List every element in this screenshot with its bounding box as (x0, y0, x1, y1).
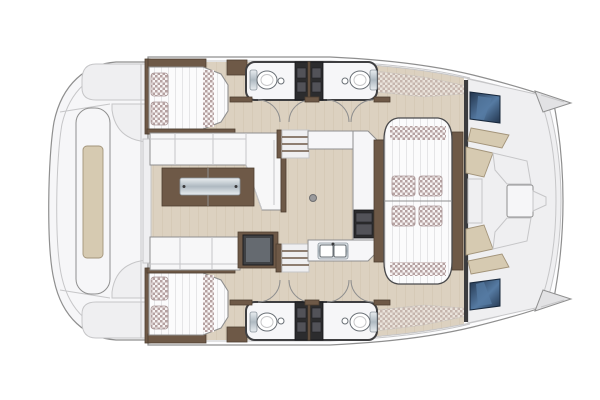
cockpit-bulkhead (464, 80, 468, 322)
stair-wall (277, 130, 282, 158)
locker-panel (312, 308, 321, 318)
lounge-cushion (419, 206, 442, 226)
galley-worktop-top (308, 131, 353, 149)
tv-cabinet (238, 232, 278, 268)
locker-divider (308, 62, 310, 100)
toilet-bowl (257, 313, 277, 331)
wall-stub (305, 97, 319, 102)
toilet (250, 70, 277, 90)
toilet-bowl (350, 313, 370, 331)
locker-panel (297, 82, 306, 92)
lounge-cushion (419, 176, 442, 196)
locker-panel (312, 68, 321, 78)
lounge-check-band (390, 126, 446, 140)
companionway-stairs-port (277, 130, 309, 158)
tray-handle (183, 185, 186, 188)
double-sink (318, 243, 348, 260)
toilet-tank (370, 312, 377, 332)
wall-stub (374, 300, 390, 305)
tv-screen (246, 238, 270, 262)
table-leg-socket (310, 195, 317, 202)
aft-cockpit (49, 62, 150, 340)
aft-side-panel-bottom (82, 302, 148, 338)
lounge-cushion (392, 176, 415, 196)
hanging-locker (227, 327, 247, 342)
wall-stub (230, 300, 252, 305)
locker-panel (297, 68, 306, 78)
dining-lounge (374, 118, 463, 284)
bow-hatch-port (470, 92, 500, 123)
toilet-tank (250, 312, 257, 332)
paper-holder (342, 318, 348, 324)
wall-stub (305, 300, 319, 305)
lounge-check-band (390, 262, 446, 276)
bed-runner (203, 70, 214, 127)
coffee-table (162, 168, 254, 206)
forward-table (507, 185, 533, 217)
wall-stub (374, 97, 390, 102)
bed-pillow (151, 102, 168, 125)
sink-basin (334, 245, 346, 257)
shower-locker (295, 62, 308, 100)
locker-panel (312, 322, 321, 332)
floor-plan-canvas (0, 0, 600, 400)
aft-side-panel-top (82, 64, 148, 100)
locker-panel (297, 322, 306, 332)
wall-stub (230, 97, 252, 102)
shower-locker (310, 62, 323, 100)
tray-handle (235, 185, 238, 188)
bench-sofa (150, 237, 240, 270)
toilet-tank (250, 70, 257, 90)
locker-panel (297, 308, 306, 318)
locker-divider (308, 302, 310, 340)
boat-floor-plan (0, 0, 600, 400)
side-table-left (374, 140, 384, 262)
bow-hatch-starboard (470, 279, 500, 310)
hanging-locker (227, 60, 247, 75)
faucet (332, 243, 335, 246)
toilet (250, 312, 277, 332)
side-table-right (452, 132, 463, 270)
toilet-bowl (257, 71, 277, 89)
aft-lounge-bench-pad (83, 146, 103, 258)
stair-wall (276, 244, 282, 272)
bed-pillow (151, 277, 168, 300)
sink-basin (320, 245, 333, 257)
locker-panel (312, 82, 321, 92)
toilet (350, 312, 377, 332)
bed-runner (203, 275, 214, 332)
stove-burner (356, 224, 372, 235)
toilet-bowl (350, 71, 370, 89)
paper-holder (278, 318, 284, 324)
stove-burner (356, 213, 372, 222)
lounge-cushion (392, 206, 415, 226)
stove (354, 210, 374, 238)
paper-holder (278, 78, 284, 84)
table-tray (180, 178, 240, 195)
companionway-stairs-starboard (276, 244, 309, 272)
bed-pillow (151, 73, 168, 96)
paper-holder (342, 78, 348, 84)
bed-pillow (151, 306, 168, 329)
toilet (350, 70, 377, 90)
forward-seat-base (468, 179, 482, 223)
toilet-tank (370, 70, 377, 90)
